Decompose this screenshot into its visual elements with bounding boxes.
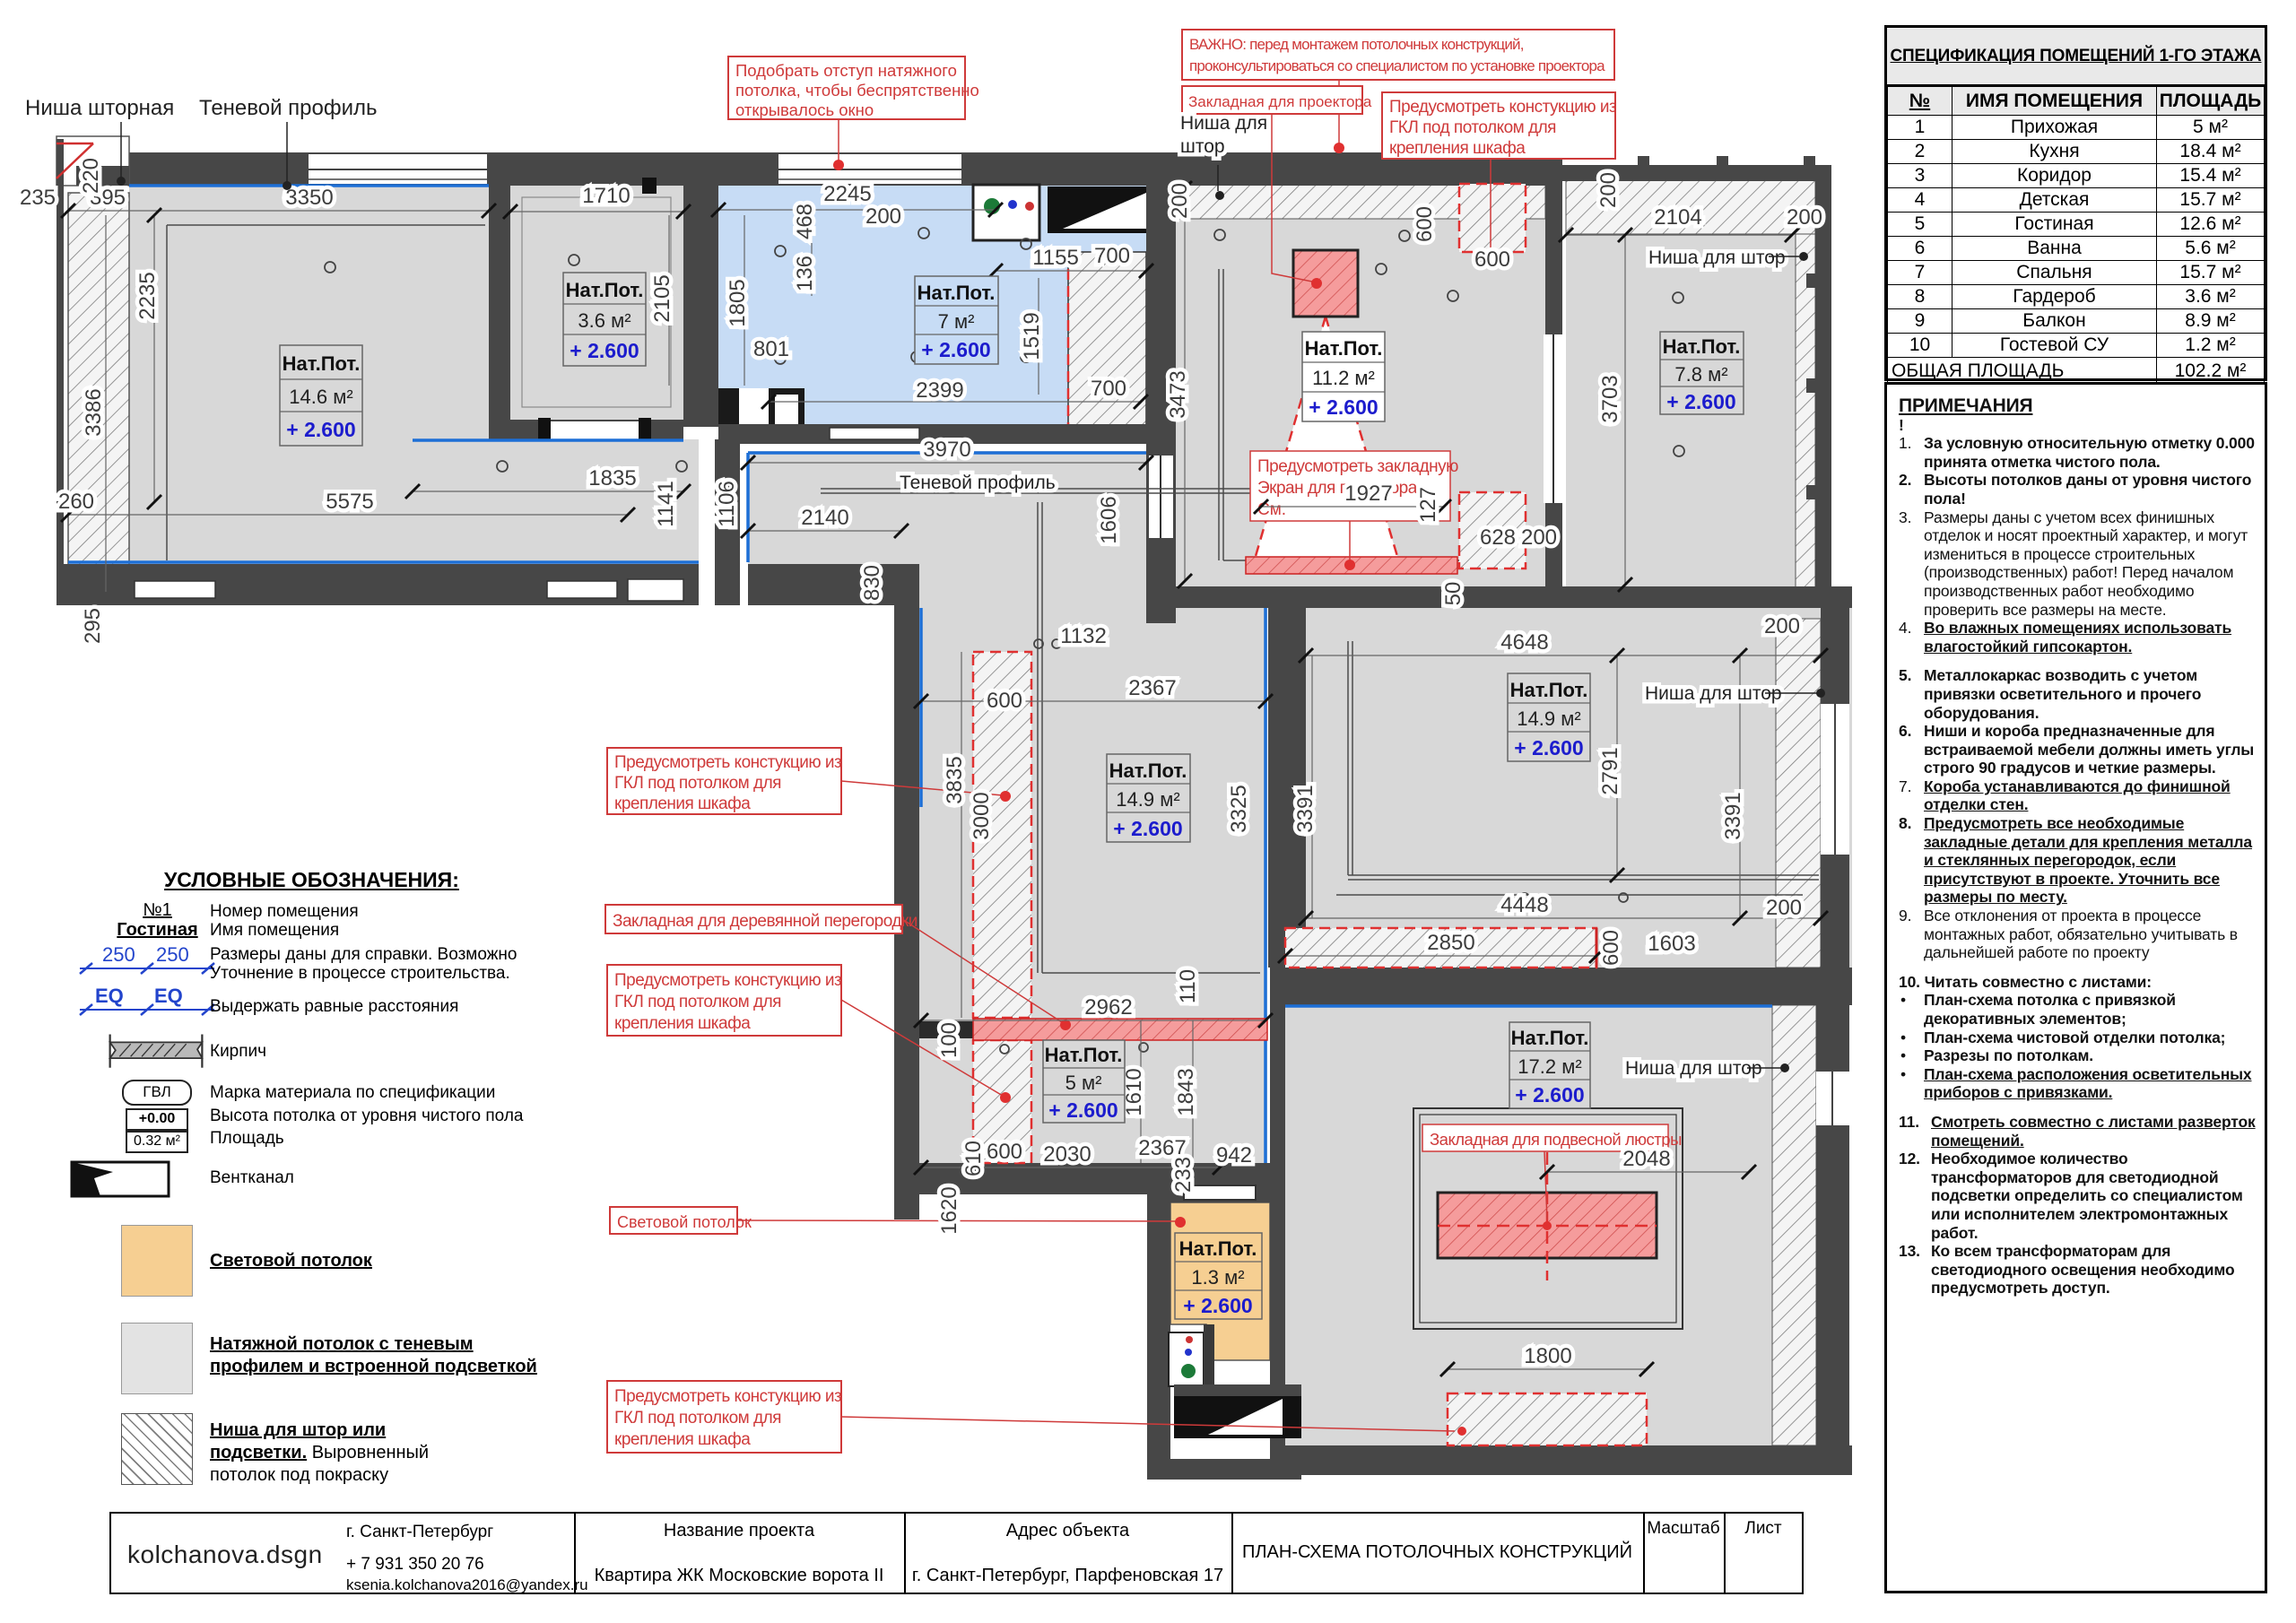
- svg-text:5 м²: 5 м²: [1065, 1072, 1102, 1094]
- svg-text:крепления шкафа: крепления шкафа: [614, 794, 751, 813]
- svg-text:200: 200: [1521, 525, 1557, 550]
- svg-text:1106: 1106: [715, 481, 739, 527]
- svg-text:1141: 1141: [654, 481, 678, 527]
- svg-text:Световой потолок: Световой потолок: [617, 1213, 752, 1231]
- svg-text:3325: 3325: [1227, 785, 1251, 832]
- svg-text:Предусмотреть констукцию из: Предусмотреть констукцию из: [614, 1387, 841, 1406]
- svg-text:2245: 2245: [823, 182, 871, 206]
- svg-text:1843: 1843: [1174, 1068, 1198, 1115]
- svg-text:17.2 м²: 17.2 м²: [1518, 1055, 1581, 1078]
- svg-text:2962: 2962: [1084, 995, 1132, 1020]
- svg-text:Нат.Пот.: Нат.Пот.: [283, 352, 361, 375]
- svg-text:700: 700: [1091, 377, 1126, 401]
- svg-text:801: 801: [753, 337, 789, 361]
- svg-text:Нат.Пот.: Нат.Пот.: [1510, 679, 1588, 701]
- svg-text:200: 200: [1766, 896, 1802, 920]
- svg-text:Закладная для деревянной перег: Закладная для деревянной перегородки: [613, 912, 918, 931]
- svg-text:1519: 1519: [1020, 312, 1044, 360]
- svg-text:250: 250: [156, 943, 189, 966]
- svg-text:Нат.Пот.: Нат.Пот.: [918, 282, 996, 304]
- svg-text:5575: 5575: [326, 490, 373, 514]
- svg-text:Нат.Пот.: Нат.Пот.: [1109, 759, 1187, 782]
- svg-text:Закладная для подвесной люстры: Закладная для подвесной люстры: [1430, 1130, 1682, 1149]
- svg-text:+ 2.600: + 2.600: [1309, 395, 1378, 419]
- svg-text:ВАЖНО: перед монтажем потолочн: ВАЖНО: перед монтажем потолочных констру…: [1189, 36, 1524, 53]
- svg-text:+ 2.600: + 2.600: [1183, 1294, 1252, 1317]
- svg-text:ГКЛ под потолком для: ГКЛ под потолком для: [614, 993, 781, 1011]
- svg-text:235: 235: [20, 186, 56, 210]
- svg-text:Предусмотреть констукцию из: Предусмотреть констукцию из: [1389, 98, 1616, 117]
- svg-text:200: 200: [1764, 614, 1800, 638]
- svg-text:830: 830: [860, 565, 884, 601]
- svg-text:ГКЛ под потолком для: ГКЛ под потолком для: [614, 1409, 781, 1428]
- svg-text:Ниша для: Ниша для: [1180, 113, 1267, 134]
- svg-text:Нат.Пот.: Нат.Пот.: [1305, 337, 1383, 360]
- svg-text:Экран для проектора: Экран для проектора: [1257, 479, 1418, 498]
- svg-text:Ниша для штор: Ниша для штор: [1648, 247, 1786, 268]
- svg-text:+ 2.600: + 2.600: [921, 338, 990, 361]
- svg-text:610: 610: [961, 1141, 986, 1176]
- svg-text:3000: 3000: [970, 792, 994, 839]
- svg-text:100: 100: [937, 1022, 961, 1058]
- svg-text:11.2 м²: 11.2 м²: [1312, 367, 1375, 389]
- svg-text:1603: 1603: [1648, 932, 1695, 956]
- svg-text:260: 260: [58, 490, 94, 514]
- svg-text:+ 2.600: + 2.600: [1514, 736, 1583, 759]
- svg-text:Нат.Пот.: Нат.Пот.: [566, 279, 644, 301]
- svg-text:3970: 3970: [923, 438, 970, 462]
- svg-text:4648: 4648: [1500, 630, 1548, 655]
- svg-text:Ниша для штор: Ниша для штор: [1625, 1058, 1762, 1079]
- svg-text:127: 127: [1416, 487, 1440, 523]
- svg-text:проконсультироваться со специа: проконсультироваться со специалистом по …: [1189, 57, 1605, 74]
- svg-text:Нат.Пот.: Нат.Пот.: [1663, 335, 1741, 358]
- svg-text:+ 2.600: + 2.600: [570, 339, 639, 362]
- svg-text:600: 600: [987, 689, 1022, 713]
- svg-text:+ 2.600: + 2.600: [1113, 817, 1182, 840]
- svg-text:2140: 2140: [801, 506, 848, 530]
- svg-text:2104: 2104: [1654, 205, 1701, 230]
- svg-text:2048: 2048: [1622, 1147, 1670, 1171]
- svg-text:250: 250: [102, 943, 135, 966]
- svg-text:+ 2.600: + 2.600: [286, 418, 355, 441]
- svg-text:+ 2.600: + 2.600: [1666, 390, 1735, 413]
- svg-text:ГКЛ под потолком для: ГКЛ под потолком для: [614, 774, 781, 793]
- svg-text:942: 942: [1216, 1143, 1252, 1167]
- svg-text:200: 200: [1168, 183, 1192, 219]
- svg-text:628: 628: [1480, 525, 1516, 550]
- svg-text:2367: 2367: [1128, 676, 1176, 700]
- svg-text:ГКЛ под потолком для: ГКЛ под потолком для: [1389, 118, 1556, 137]
- svg-text:220: 220: [79, 158, 103, 194]
- svg-text:открывалось окно: открывалось окно: [735, 100, 874, 119]
- svg-text:50: 50: [1441, 582, 1465, 606]
- svg-text:3391: 3391: [1721, 792, 1745, 839]
- svg-text:200: 200: [865, 204, 901, 229]
- svg-text:2791: 2791: [1598, 747, 1622, 794]
- svg-text:1800: 1800: [1524, 1344, 1571, 1368]
- svg-text:3350: 3350: [285, 186, 333, 210]
- svg-text:1.3 м²: 1.3 м²: [1191, 1266, 1244, 1289]
- svg-text:1155: 1155: [1032, 246, 1079, 270]
- svg-text:2850: 2850: [1427, 931, 1474, 955]
- svg-text:Теневой профиль: Теневой профиль: [900, 473, 1056, 493]
- svg-text:Предусмотреть констукцию из: Предусмотреть констукцию из: [614, 971, 841, 990]
- svg-text:110: 110: [1176, 969, 1200, 1003]
- svg-text:См.: См.: [1257, 500, 1286, 519]
- svg-text:3473: 3473: [1166, 370, 1190, 418]
- svg-text:Подобрать отступ натяжного: Подобрать отступ натяжного: [735, 61, 957, 80]
- svg-text:3391: 3391: [1293, 785, 1318, 832]
- svg-text:1927: 1927: [1344, 482, 1392, 506]
- svg-text:EQ: EQ: [154, 985, 183, 1007]
- svg-text:700: 700: [1094, 244, 1130, 268]
- svg-text:Нат.Пот.: Нат.Пот.: [1045, 1044, 1123, 1066]
- svg-text:600: 600: [1599, 930, 1623, 966]
- svg-text:1710: 1710: [582, 184, 630, 208]
- svg-text:2367: 2367: [1138, 1136, 1186, 1160]
- svg-text:3386: 3386: [82, 388, 106, 436]
- svg-text:200: 200: [1787, 205, 1822, 230]
- svg-text:233: 233: [1171, 1157, 1196, 1193]
- svg-text:3.6 м²: 3.6 м²: [578, 309, 631, 332]
- svg-text:7.8 м²: 7.8 м²: [1674, 363, 1727, 386]
- svg-text:2030: 2030: [1043, 1142, 1091, 1167]
- svg-text:200: 200: [1596, 172, 1621, 208]
- svg-text:Предусмотреть закладную: Предусмотреть закладную: [1257, 457, 1458, 476]
- svg-text:2399: 2399: [916, 378, 963, 403]
- svg-text:468: 468: [793, 204, 817, 239]
- svg-text:1610: 1610: [1122, 1068, 1146, 1115]
- svg-text:1805: 1805: [726, 279, 750, 326]
- svg-text:2235: 2235: [135, 272, 160, 319]
- svg-text:Нат.Пот.: Нат.Пот.: [1179, 1237, 1257, 1260]
- svg-text:крепления шкафа: крепления шкафа: [614, 1430, 751, 1449]
- svg-text:600: 600: [1413, 206, 1437, 242]
- svg-text:крепления шкафа: крепления шкафа: [614, 1014, 751, 1033]
- svg-text:+ 2.600: + 2.600: [1515, 1083, 1584, 1107]
- svg-text:1132: 1132: [1060, 624, 1107, 648]
- svg-text:136: 136: [793, 256, 817, 291]
- svg-text:600: 600: [1474, 247, 1510, 272]
- svg-text:1606: 1606: [1097, 496, 1121, 543]
- svg-text:крепления шкафа: крепления шкафа: [1389, 139, 1526, 158]
- svg-text:4448: 4448: [1500, 893, 1548, 917]
- svg-text:295: 295: [81, 608, 105, 644]
- svg-text:+ 2.600: + 2.600: [1048, 1098, 1118, 1122]
- svg-text:2105: 2105: [650, 274, 674, 322]
- svg-text:Теневой профиль: Теневой профиль: [199, 96, 378, 120]
- svg-text:штор: штор: [1180, 136, 1225, 157]
- svg-text:14.9 м²: 14.9 м²: [1517, 707, 1580, 730]
- svg-text:Ниша для штор: Ниша для штор: [1645, 683, 1782, 704]
- svg-text:Нат.Пот.: Нат.Пот.: [1511, 1027, 1589, 1049]
- svg-text:Закладная для проектора: Закладная для проектора: [1188, 93, 1372, 110]
- svg-text:3835: 3835: [943, 756, 967, 803]
- svg-text:1620: 1620: [937, 1186, 961, 1234]
- svg-text:EQ: EQ: [95, 985, 124, 1007]
- svg-text:14.9 м²: 14.9 м²: [1116, 788, 1179, 811]
- svg-text:потолка, чтобы беспрятственно: потолка, чтобы беспрятственно: [735, 81, 979, 100]
- svg-text:Ниша шторная: Ниша шторная: [25, 96, 174, 120]
- svg-text:14.6 м²: 14.6 м²: [289, 386, 352, 408]
- svg-text:Предусмотреть констукцию из: Предусмотреть констукцию из: [614, 753, 841, 772]
- svg-text:3703: 3703: [1598, 375, 1622, 422]
- svg-text:7 м²: 7 м²: [938, 310, 975, 333]
- svg-text:600: 600: [987, 1140, 1022, 1164]
- svg-text:1835: 1835: [588, 466, 636, 490]
